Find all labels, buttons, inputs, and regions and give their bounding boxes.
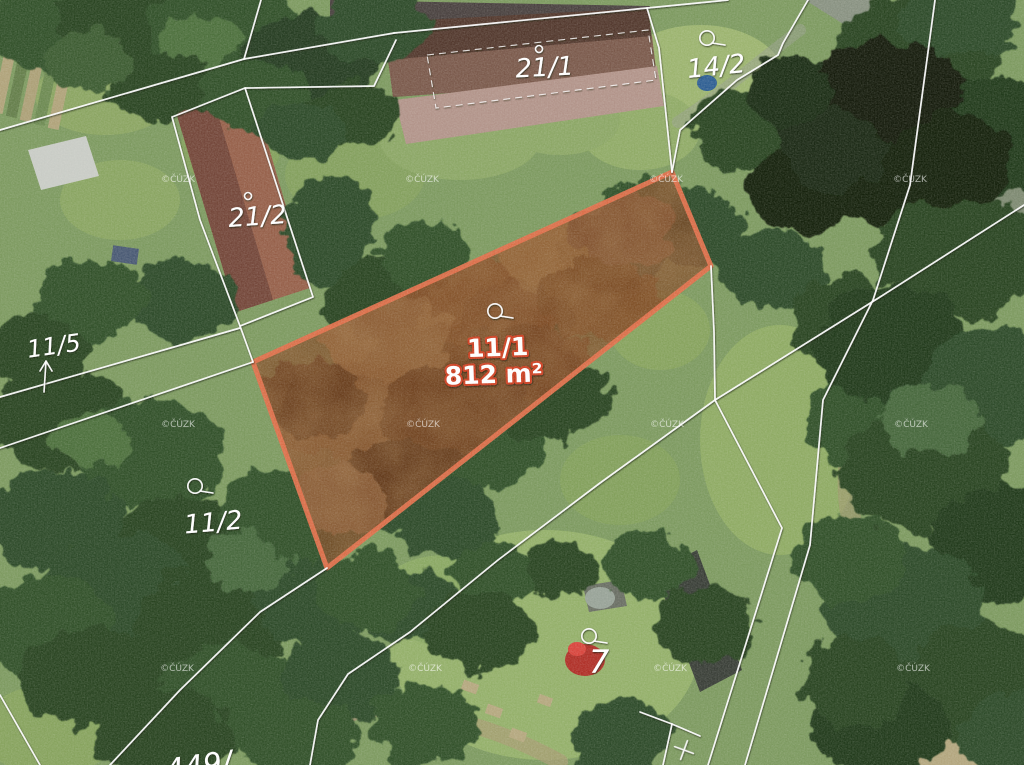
tree-canopy [520, 540, 600, 600]
tree-canopy [50, 412, 130, 468]
aerial-map-view[interactable]: 21/114/221/211/511/27449/11/1812 m² ©ČÚZ… [0, 0, 1024, 765]
parcel-label-21-2: 21/2 [227, 200, 287, 234]
watermark-cuzk: ©ČÚZK [408, 662, 443, 674]
watermark-cuzk: ©ČÚZK [161, 173, 196, 185]
watermark-cuzk: ©ČÚZK [649, 173, 684, 185]
tree-canopy [425, 590, 535, 670]
watermark-cuzk: ©ČÚZK [894, 418, 929, 430]
ground-feature [568, 642, 586, 656]
watermark-cuzk: ©ČÚZK [405, 173, 440, 185]
tree-canopy [605, 531, 695, 599]
tree-canopy [370, 685, 480, 765]
watermark-cuzk: ©ČÚZK [896, 662, 931, 674]
watermark-cuzk: ©ČÚZK [650, 418, 685, 430]
tree-canopy [885, 112, 1015, 208]
tree-canopy [745, 55, 835, 125]
watermark-cuzk: ©ČÚZK [893, 173, 928, 185]
parcel-label-14-2: 14/2 [686, 49, 747, 85]
watermark-cuzk: ©ČÚZK [406, 418, 441, 430]
tree-canopy [45, 30, 135, 90]
tree-canopy [655, 585, 755, 665]
ground-feature [585, 587, 615, 609]
cadastral-map-svg: 21/114/221/211/511/27449/11/1812 m² ©ČÚZ… [0, 0, 1024, 765]
parcel-label-7: 7 [589, 643, 610, 681]
watermark-cuzk: ©ČÚZK [653, 662, 688, 674]
parcel-label-21-1: 21/1 [515, 52, 575, 85]
highlight-parcel-area: 812 m² [444, 358, 543, 390]
tree-canopy [255, 100, 345, 160]
parcel-label-11-2: 11/2 [183, 506, 244, 541]
grass-patch [560, 435, 680, 525]
tree-canopy [160, 15, 240, 65]
watermark-cuzk: ©ČÚZK [161, 418, 196, 430]
tree-canopy [800, 635, 910, 725]
watermark-cuzk: ©ČÚZK [160, 662, 195, 674]
